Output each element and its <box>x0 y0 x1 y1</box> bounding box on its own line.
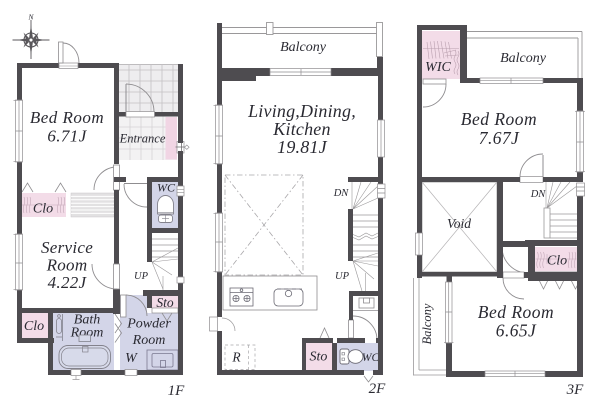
svg-text:Powder: Powder <box>126 317 171 332</box>
svg-text:R: R <box>231 350 241 365</box>
svg-text:Clo: Clo <box>33 202 53 217</box>
svg-text:Bed Room: Bed Room <box>30 108 104 127</box>
svg-text:Room: Room <box>132 333 166 348</box>
svg-text:Balcony: Balcony <box>280 40 327 55</box>
svg-text:19.81J: 19.81J <box>277 137 328 157</box>
svg-text:Balcony: Balcony <box>420 303 434 344</box>
svg-text:UP: UP <box>134 271 149 282</box>
svg-text:2F: 2F <box>369 381 387 397</box>
svg-text:Bed Room: Bed Room <box>478 302 554 322</box>
svg-text:7.67J: 7.67J <box>479 128 520 148</box>
svg-text:N: N <box>27 13 34 22</box>
svg-text:W: W <box>125 351 138 366</box>
svg-text:4.22J: 4.22J <box>48 273 88 292</box>
svg-text:UP: UP <box>335 271 350 282</box>
svg-text:DN: DN <box>333 188 350 199</box>
svg-text:3F: 3F <box>566 382 585 398</box>
svg-text:WC: WC <box>362 352 380 364</box>
svg-text:Clo: Clo <box>547 254 567 269</box>
svg-text:6.65J: 6.65J <box>496 321 537 341</box>
svg-text:Balcony: Balcony <box>500 51 547 66</box>
svg-text:Entrance: Entrance <box>119 132 166 146</box>
svg-text:DN: DN <box>530 189 547 200</box>
svg-text:WIC: WIC <box>425 60 451 75</box>
svg-text:Kitchen: Kitchen <box>272 119 330 139</box>
svg-text:Sto: Sto <box>310 350 328 365</box>
svg-text:6.71J: 6.71J <box>47 127 87 146</box>
svg-text:Clo: Clo <box>24 319 44 334</box>
svg-text:Void: Void <box>447 216 471 231</box>
svg-text:Bed Room: Bed Room <box>461 109 537 129</box>
svg-text:1F: 1F <box>168 383 186 399</box>
svg-text:WC: WC <box>157 181 176 195</box>
svg-text:Room: Room <box>46 256 88 275</box>
svg-text:Service: Service <box>41 238 93 257</box>
svg-text:Living,Dining,: Living,Dining, <box>247 101 356 121</box>
